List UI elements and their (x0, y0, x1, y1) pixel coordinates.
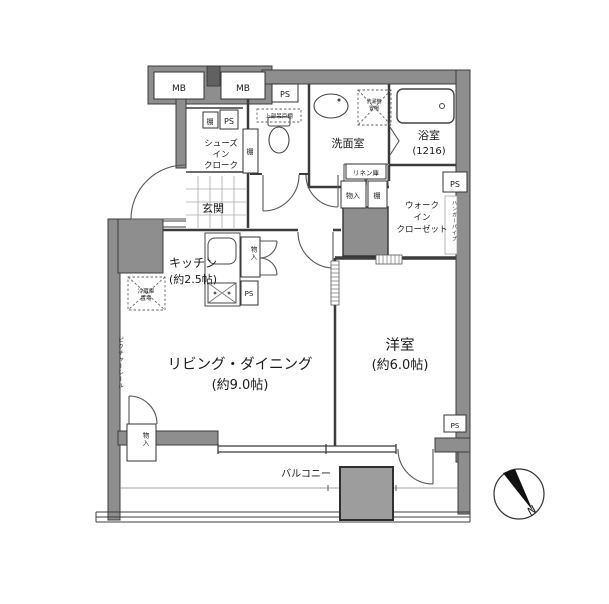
compass: N (494, 469, 544, 519)
floorplan-page: N MB MB PS 棚 PS シューズ イン クローク 棚 玄関 上部吊戸棚 … (0, 0, 609, 604)
label-picture-rail: ピクチャーレール (117, 337, 124, 389)
stove-burner-dot-1 (214, 292, 217, 295)
label-western-room-size: (約6.0帖) (372, 358, 429, 373)
hall-pillar (343, 207, 388, 256)
entrance-door (131, 165, 186, 219)
label-sic-line1: シューズ (204, 138, 238, 149)
balcony-pillar (340, 467, 393, 520)
bath-folding-door (390, 127, 399, 155)
label-storage-kitchen: 物入 (249, 245, 257, 261)
label-wic-line1: ウォーク (405, 201, 439, 211)
wall-hatch-western-top (376, 255, 402, 264)
wall-right (456, 70, 470, 462)
wall-top (262, 70, 470, 84)
label-bathroom-size: (1216) (412, 146, 445, 157)
wall-bottom-right (435, 438, 470, 452)
wall-sic-left (176, 96, 186, 168)
label-washer-line1: 洗濯機 (366, 98, 381, 105)
label-western-room: 洋室 (386, 337, 415, 354)
label-bathroom: 浴室 (418, 128, 440, 142)
washbasin-icon (314, 94, 348, 118)
label-toilet-upper-cabinet: 上部吊戸棚 (265, 112, 293, 120)
label-ps-top: PS (280, 90, 290, 99)
toilet-bowl-icon (269, 127, 289, 153)
label-balcony: バルコニー (281, 468, 331, 480)
label-living-dining-size: (約9.0帖) (212, 378, 269, 393)
label-washroom: 洗面室 (332, 136, 365, 150)
label-wic-line3: クローゼット (396, 224, 447, 235)
bathtub-icon (397, 89, 454, 123)
floorplan-drawing: N MB MB PS 棚 PS シューズ イン クローク 棚 玄関 上部吊戸棚 … (0, 0, 609, 604)
wall-kitchen-corner-column (118, 219, 163, 273)
label-living-dining: リビング・ダイニング (168, 356, 313, 373)
kitchen-storage-double-door (260, 241, 277, 275)
stove-burner-dot-2 (228, 292, 231, 295)
sliding-door-pocket (331, 261, 339, 305)
label-storage-hall: 物入 (346, 191, 360, 200)
entrance-step-lines (163, 221, 186, 227)
label-wic-hanger: ハンガーパイプ (451, 200, 457, 242)
label-kitchen: キッチン (169, 256, 217, 270)
label-entrance: 玄関 (202, 201, 224, 215)
label-fridge-line1: 冷蔵庫 (138, 287, 155, 295)
label-wic-line2: イン (413, 213, 430, 223)
living-storage-door (129, 396, 157, 424)
label-ps-kitchen: PS (245, 290, 254, 298)
wall-notch (207, 66, 220, 86)
balcony-railing (96, 452, 470, 522)
label-washer-line2: 置場 (369, 105, 379, 112)
living-balcony-window (218, 444, 396, 454)
label-fridge-line2: 置場 (140, 294, 152, 302)
label-shelf-toilet: 棚 (247, 147, 254, 156)
label-sic-line3: クローク (204, 161, 238, 171)
label-storage-bottom: 物入 (141, 431, 149, 447)
label-mb-2: MB (236, 84, 250, 94)
toilet-door (263, 175, 299, 211)
label-shelf-hall: 棚 (374, 191, 381, 200)
label-ps-western: PS (451, 422, 460, 430)
hall-living-door (298, 232, 333, 268)
label-sic-line2: イン (212, 150, 229, 160)
western-balcony-door (398, 449, 433, 484)
label-ps-wic: PS (450, 180, 460, 189)
label-kitchen-size: (約2.5帖) (169, 272, 217, 286)
label-linen: リネン庫 (353, 168, 380, 177)
wall-balcony-right (458, 452, 470, 514)
label-mb-1: MB (172, 84, 186, 94)
label-shelf-sic: 棚 (207, 117, 214, 126)
hall-washroom-door (306, 175, 338, 207)
label-ps-sic: PS (224, 117, 234, 126)
washbasin-faucet-icon (338, 99, 341, 102)
